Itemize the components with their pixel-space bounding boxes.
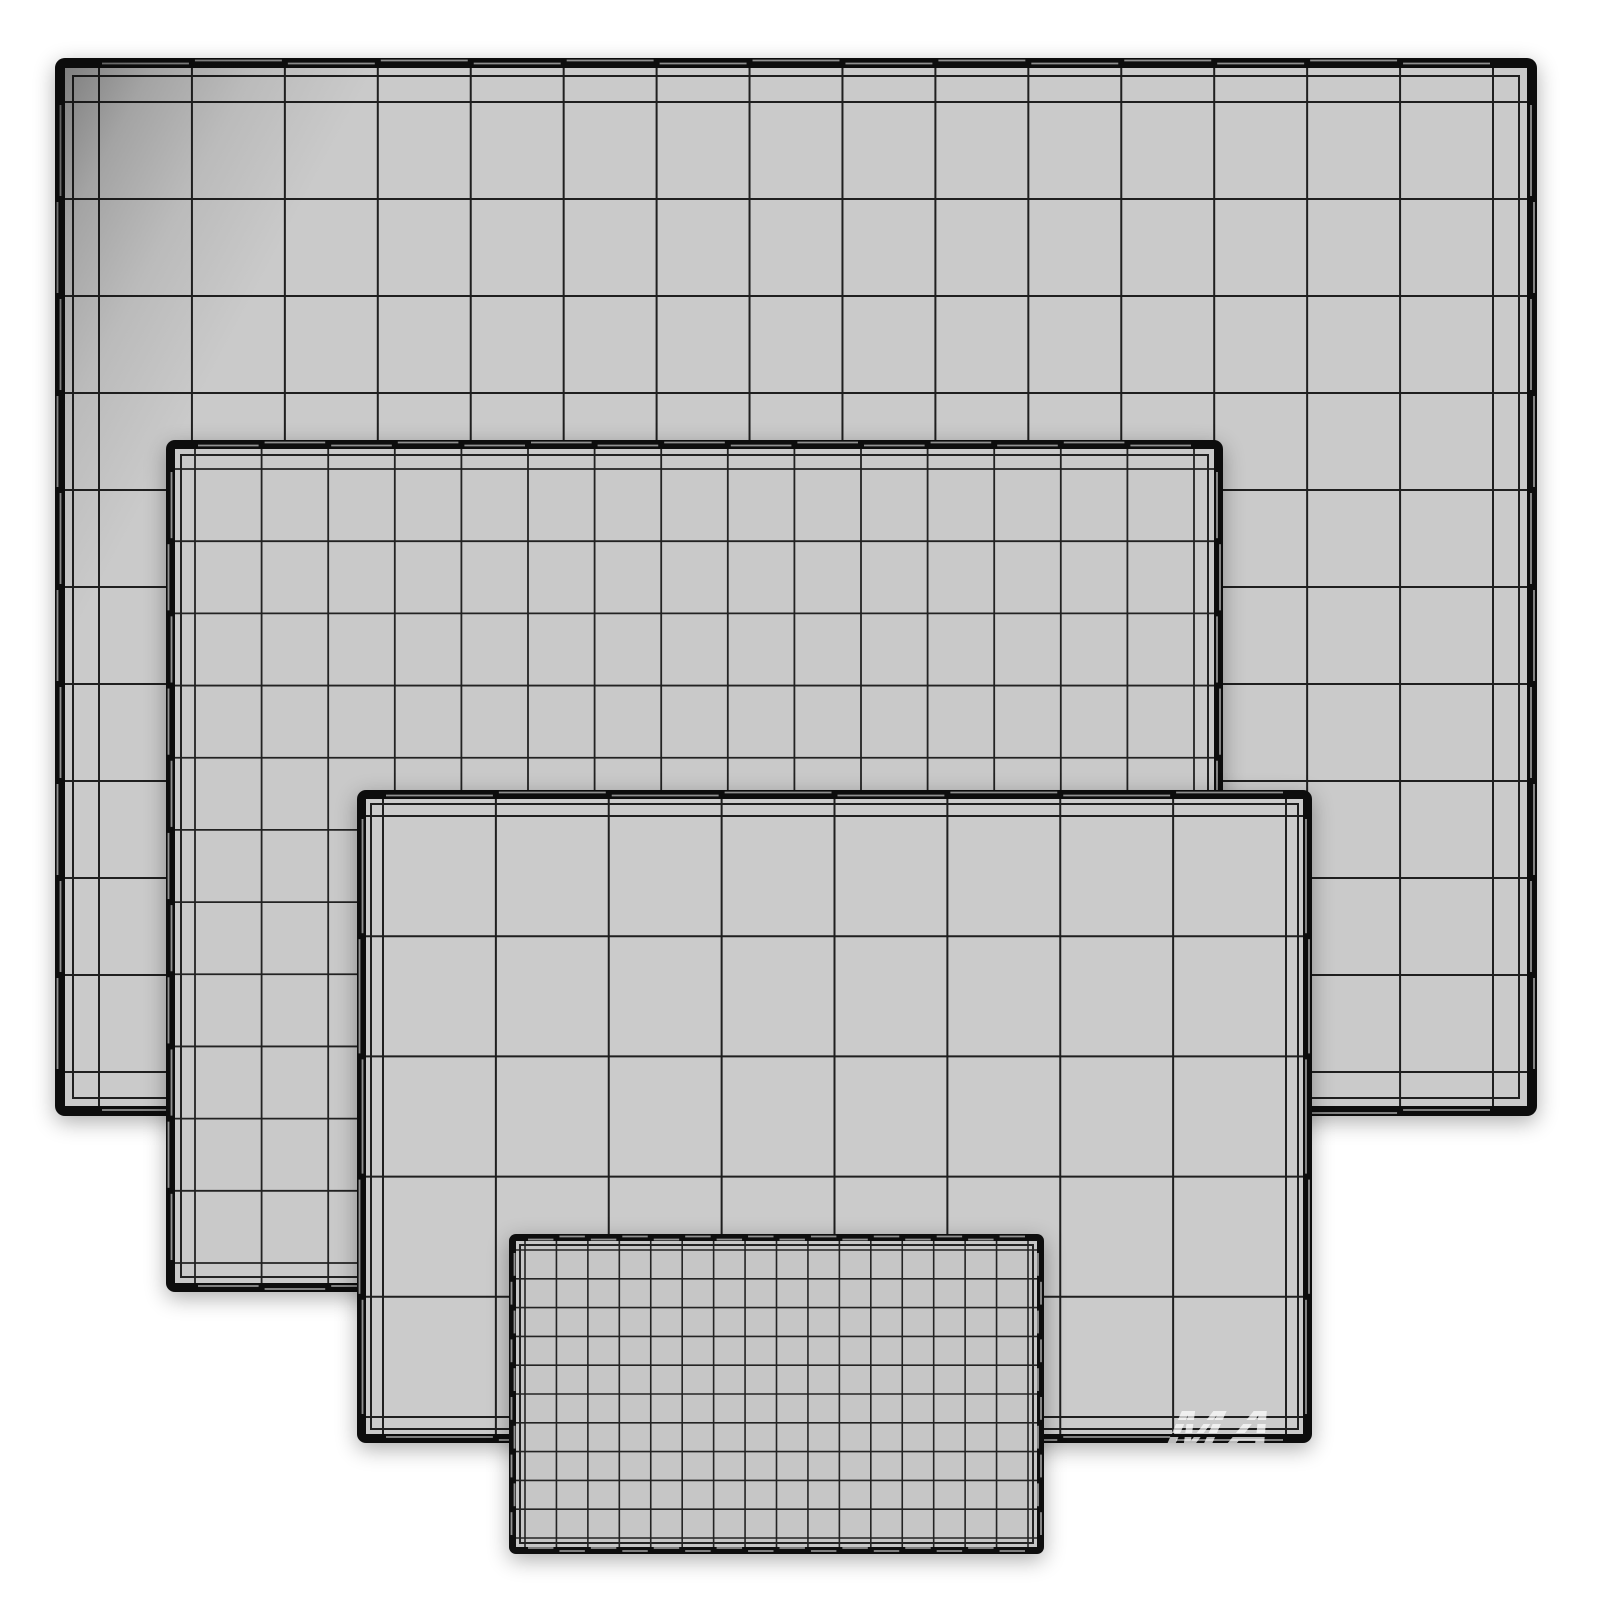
panel-small-dense-mesh	[509, 1234, 1044, 1554]
panel-small-dense	[509, 1234, 1044, 1554]
wireframe-scene: MA	[0, 0, 1600, 1600]
